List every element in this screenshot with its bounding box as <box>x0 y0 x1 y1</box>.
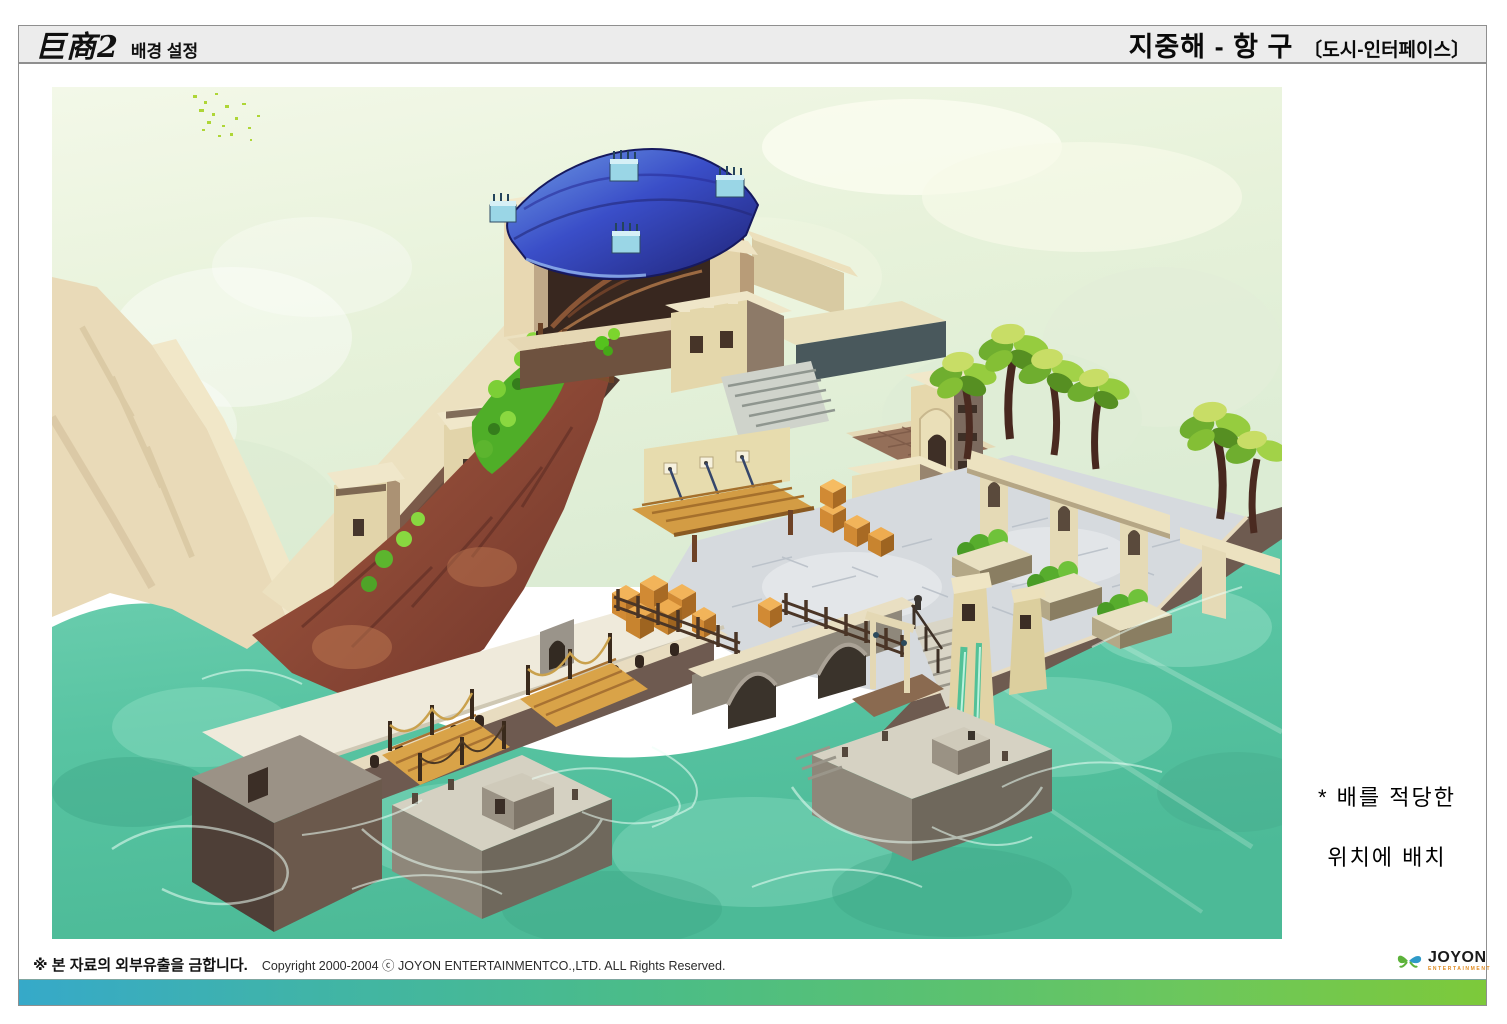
confidentiality-notice: ※ 본 자료의 외부유출을 금합니다. <box>33 954 248 975</box>
footer: ※ 본 자료의 외부유출을 금합니다. Copyright 2000-2004 … <box>33 954 725 975</box>
concept-art-harbor <box>52 87 1282 939</box>
designer-note-line1: * 배를 적당한 <box>1287 768 1487 828</box>
joyon-butterfly-icon <box>1397 951 1423 971</box>
page-frame: 巨商2 배경 설정 지중해 - 항 구 〔도시-인터페이스〕 <box>18 25 1487 1006</box>
header-right: 지중해 - 항 구 〔도시-인터페이스〕 <box>1129 25 1470 64</box>
joyon-name: JOYON <box>1428 950 1491 966</box>
header-bar: 巨商2 배경 설정 지중해 - 항 구 〔도시-인터페이스〕 <box>19 26 1486 64</box>
joyon-logo: JOYON ENTERTAINMENT <box>1397 950 1491 972</box>
footer-gradient-bar <box>19 979 1486 1005</box>
copyright-text: Copyright 2000-2004 ⓒ JOYON ENTERTAINMEN… <box>262 955 726 974</box>
section-title: 지중해 - 항 구 <box>1129 25 1294 64</box>
designer-note-line2: 위치에 배치 <box>1287 828 1487 888</box>
project-title: 巨商2 <box>35 22 119 66</box>
project-subtitle: 배경 설정 <box>131 37 198 62</box>
designer-note: * 배를 적당한 위치에 배치 <box>1287 768 1487 888</box>
harbor-illustration <box>52 87 1282 939</box>
section-subtitle: 〔도시-인터페이스〕 <box>1303 35 1470 62</box>
document-page: 巨商2 배경 설정 지중해 - 항 구 〔도시-인터페이스〕 <box>0 0 1507 1024</box>
joyon-entertainment-label: ENTERTAINMENT <box>1428 967 1491 972</box>
joyon-wordmark: JOYON ENTERTAINMENT <box>1428 950 1491 972</box>
header-left: 巨商2 배경 설정 <box>35 22 198 66</box>
